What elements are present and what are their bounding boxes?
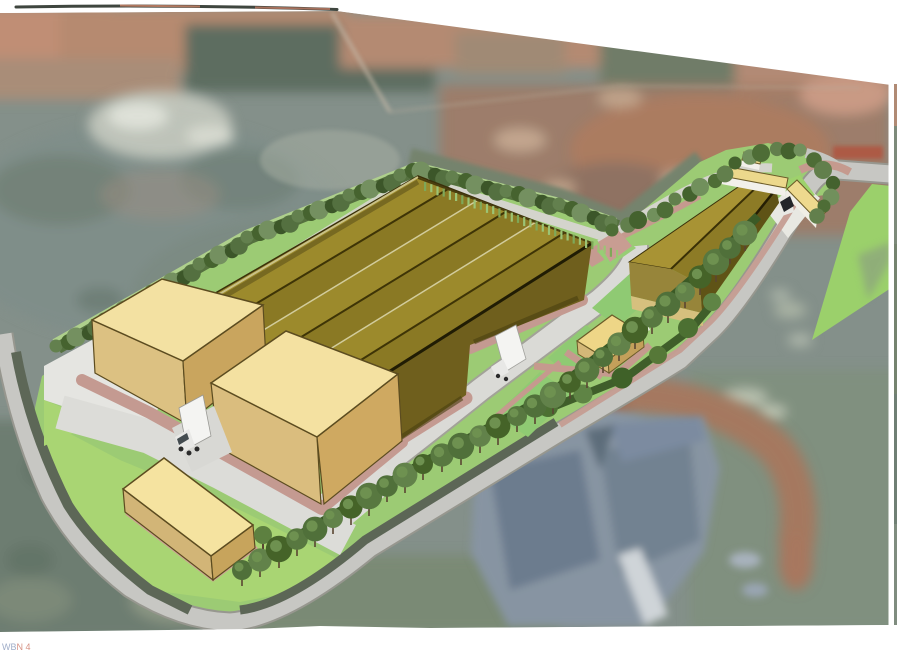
- svg-text:WBN 4: WBN 4: [2, 642, 31, 651]
